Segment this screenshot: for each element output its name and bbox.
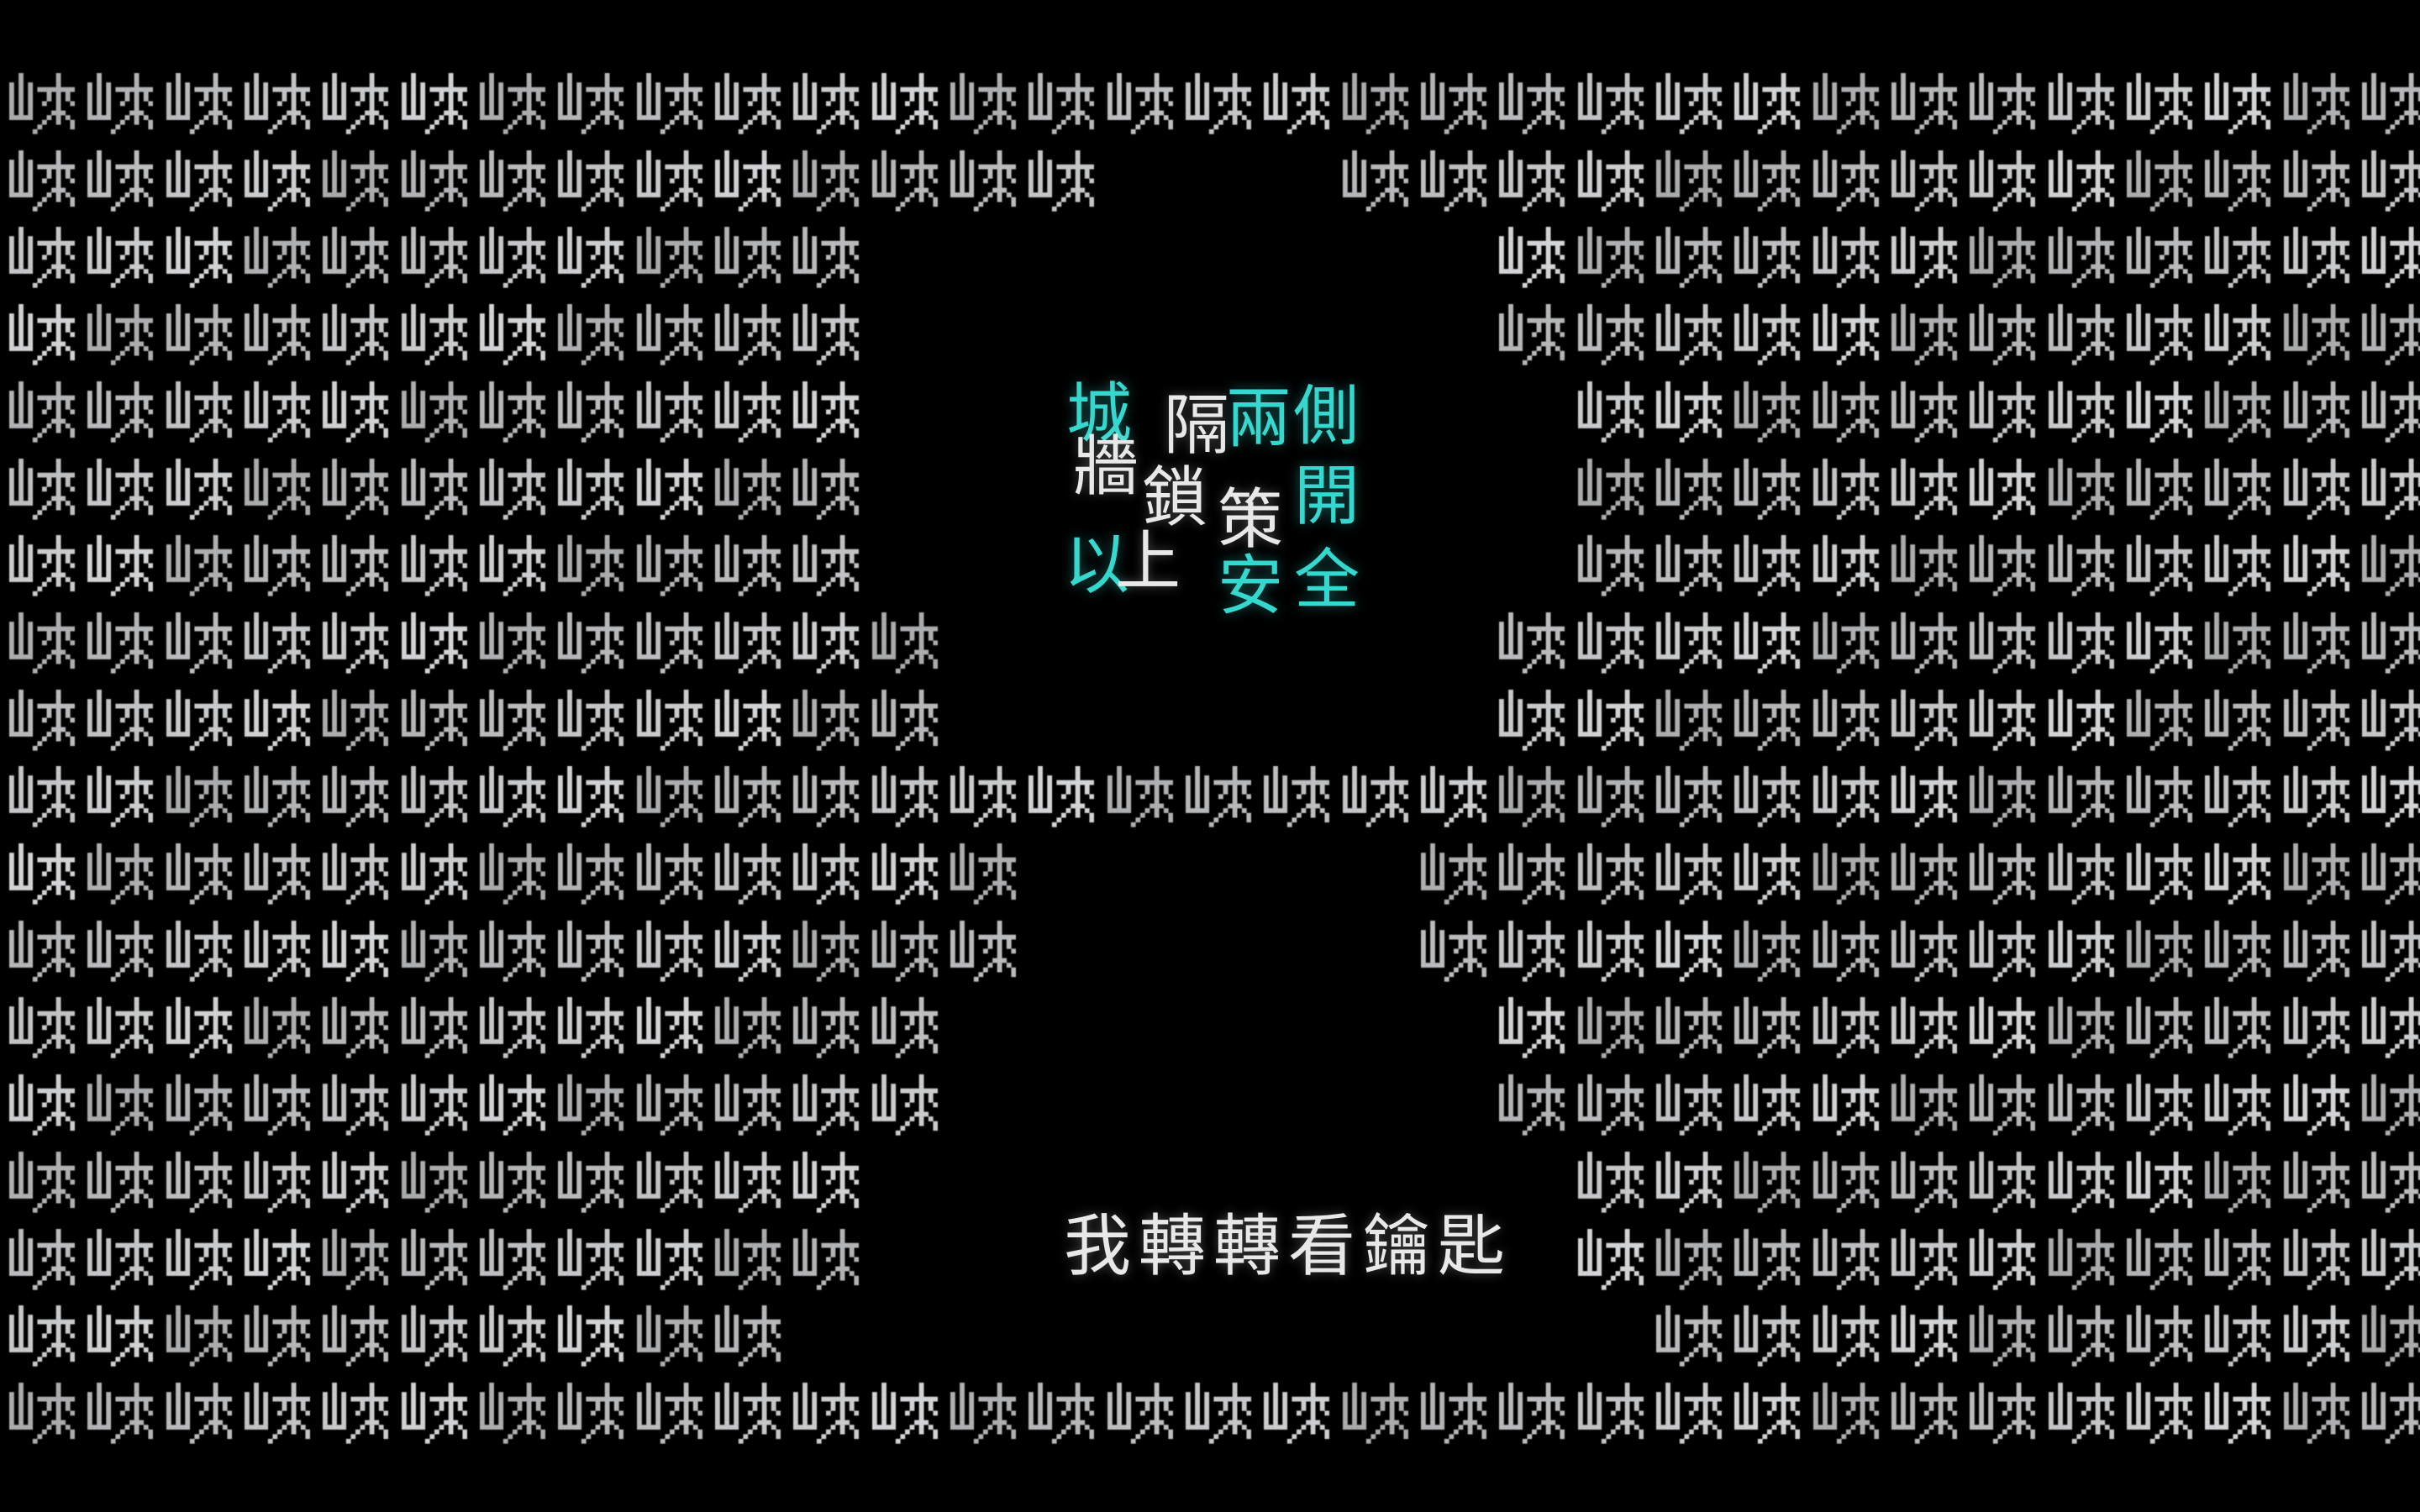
story-char-10: 上 <box>1113 528 1182 596</box>
story-char-6: 鎖 <box>1140 464 1209 533</box>
player-sentence[interactable]: 我轉轉看鑰匙 <box>1064 1212 1512 1281</box>
story-char-3[interactable]: 兩 <box>1224 385 1293 454</box>
story-char-8[interactable]: 開 <box>1292 462 1361 531</box>
story-char-4[interactable]: 側 <box>1292 382 1360 451</box>
story-char-7: 策 <box>1216 486 1285 554</box>
story-char-5: 牆 <box>1071 433 1140 501</box>
story-char-2: 隔 <box>1162 391 1231 460</box>
story-text-block: 城隔兩側牆鎖策開以上安全 <box>0 0 2420 1512</box>
game-screen: 城隔兩側牆鎖策開以上安全 我轉轉看鑰匙 <box>0 0 2420 1512</box>
story-char-12[interactable]: 全 <box>1292 546 1361 615</box>
story-char-11[interactable]: 安 <box>1216 552 1285 621</box>
